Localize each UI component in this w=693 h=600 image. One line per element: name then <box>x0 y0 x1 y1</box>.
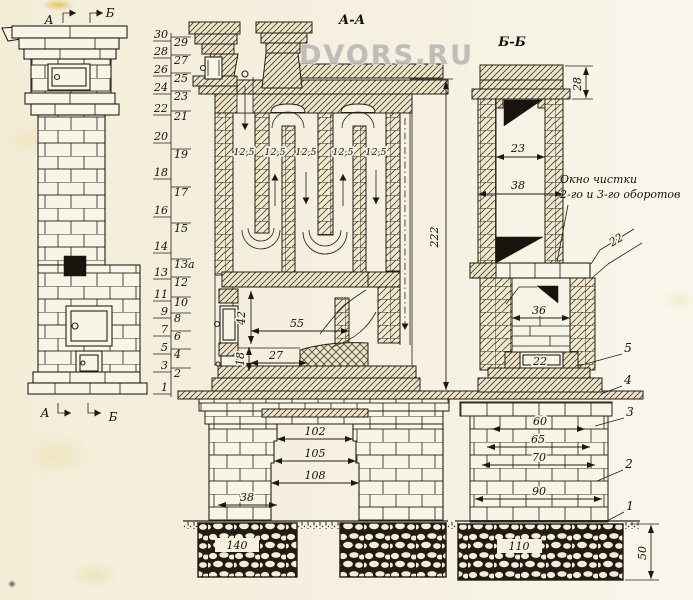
row-number: 21 <box>173 110 188 123</box>
row-number: 8 <box>174 312 181 325</box>
dim-firebox-width: 36 <box>532 304 546 317</box>
door-knob <box>216 362 220 366</box>
dim-cap-height: 28 <box>571 77 584 92</box>
dim-firebox-depth: 55 <box>290 317 304 330</box>
row-number: 1 <box>161 381 168 394</box>
callout-1: 1 <box>626 499 634 513</box>
front-view: А Б А Б <box>2 6 147 424</box>
row-number: 23 <box>173 90 188 103</box>
dim-ashpit-height: 18 <box>234 352 247 366</box>
stove-blueprint-drawing: А Б А Б 30 28 26 24 22 20 18 16 14 13 11… <box>0 0 693 600</box>
foundation-pier-left <box>209 424 277 520</box>
door-knob <box>201 66 206 71</box>
dim-foundation: 108 <box>305 469 326 482</box>
callout-3: 3 <box>626 405 634 419</box>
door-knob <box>81 361 85 365</box>
cleanout-note-line1: Окно чистки <box>560 173 637 186</box>
foundation-pier-right <box>353 424 443 520</box>
row-number: 5 <box>161 341 168 354</box>
callout-2: 2 <box>624 457 633 471</box>
row-number: 18 <box>154 166 168 179</box>
stove-blueprint-page: А Б А Б 30 28 26 24 22 20 18 16 14 13 11… <box>0 0 693 600</box>
row-number: 30 <box>154 28 168 41</box>
section-cut-mark <box>63 13 76 23</box>
dim-channel-width: 12,5 <box>233 147 254 158</box>
dim-pier-width: 38 <box>240 491 254 504</box>
dim-channel-width: 12,5 <box>295 147 316 158</box>
row-number: 25 <box>173 72 188 85</box>
dim-channel-width: 12,5 <box>332 147 353 158</box>
callout-5: 5 <box>624 341 632 355</box>
row-number: 15 <box>174 222 188 235</box>
cleanout-note-line2: 2-го и 3-го оборотов <box>559 188 680 201</box>
watermark: DVORS.RU <box>299 40 474 71</box>
cut-label-b-bottom: Б <box>108 410 118 424</box>
row-number: 2 <box>173 367 181 380</box>
row-number: 26 <box>153 63 168 76</box>
row-number: 17 <box>174 186 188 199</box>
dim-ledge: 22 <box>606 231 626 250</box>
row-number: 28 <box>153 45 168 58</box>
cut-label-a-bottom: А <box>39 406 49 420</box>
row-number: 29 <box>173 36 188 49</box>
dim-rubble-width: 140 <box>227 539 248 552</box>
row-number: 9 <box>161 305 168 318</box>
row-number: 22 <box>153 102 168 115</box>
dim-door-width: 22 <box>532 355 547 368</box>
row-number: 7 <box>161 323 168 336</box>
dim-channel-width: 12,5 <box>264 147 285 158</box>
row-number: 11 <box>154 288 168 301</box>
row-number: 6 <box>174 330 181 343</box>
door-knob <box>55 75 60 80</box>
firebox-arch-dark <box>537 286 558 303</box>
dim-footing: 90 <box>532 485 546 498</box>
dim-rubble-depth: 50 <box>636 546 649 560</box>
flue-divider-dark <box>504 100 542 126</box>
dim-channel-width: 12,5 <box>365 147 386 158</box>
course-row-scale: 30 28 26 24 22 20 18 16 14 13 11 9 7 5 3… <box>153 28 195 397</box>
row-number: 16 <box>154 204 168 217</box>
section-cut-mark <box>90 13 103 23</box>
callout-4: 4 <box>623 373 632 387</box>
chimney-damper-door <box>205 57 222 79</box>
row-number: 24 <box>153 81 168 94</box>
flue-cap-knob <box>242 71 248 77</box>
row-number: 13 <box>154 266 168 279</box>
row-number: 13а <box>174 258 195 271</box>
row-number: 14 <box>154 240 168 253</box>
dim-rubble-width: 110 <box>509 540 530 553</box>
section-bb-title: Б-Б <box>497 35 526 50</box>
row-number: 20 <box>153 130 168 143</box>
section-cut-mark <box>58 403 71 413</box>
cut-label-a-top: А <box>43 13 53 27</box>
dim-footing: 70 <box>532 451 546 464</box>
dim-footing: 65 <box>531 433 545 446</box>
section-aa <box>189 22 448 391</box>
cut-label-b-top: Б <box>105 6 115 20</box>
section-bb <box>470 65 602 392</box>
dim-hearth: 27 <box>268 349 283 362</box>
rubble-footing <box>340 523 446 577</box>
dim-foundation: 102 <box>305 425 326 438</box>
flue-divider-dark <box>496 237 543 263</box>
row-number: 10 <box>174 296 188 309</box>
row-number: 19 <box>174 148 188 161</box>
ground-and-rubble <box>183 521 640 580</box>
row-number: 4 <box>173 348 181 361</box>
section-aa-title: А-А <box>338 13 366 28</box>
dim-flue-outer: 38 <box>511 179 525 192</box>
section-cut-mark <box>88 403 101 413</box>
door-knob <box>72 323 78 329</box>
row-number: 12 <box>174 276 188 289</box>
dim-overall-height: 222 <box>428 227 441 249</box>
row-number: 27 <box>173 54 188 67</box>
vent-damper-dark <box>64 256 86 276</box>
dim-foundation: 105 <box>305 447 326 460</box>
dim-footing: 60 <box>533 415 547 428</box>
dim-flue-width: 23 <box>510 142 525 155</box>
row-number: 3 <box>161 359 168 372</box>
dim-firebox-height: 42 <box>235 311 248 326</box>
